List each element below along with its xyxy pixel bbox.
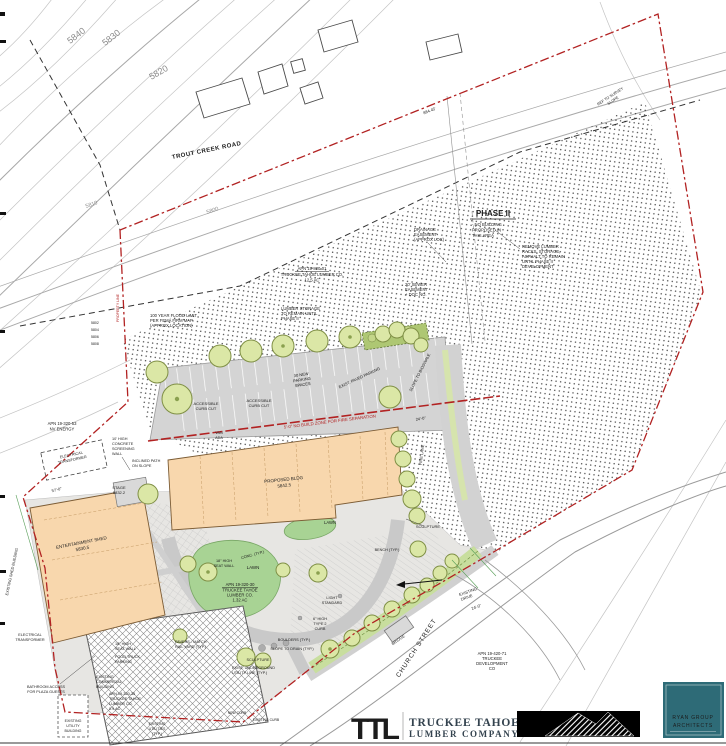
existing-utilities-label: (TYP.) [152,732,162,736]
inclined-path-label: ON SLOPE [132,464,152,468]
phase2-remove-note: DEVELOPMENT [522,264,554,269]
apn-nv-energy: APN 19-320-53 [48,421,78,426]
van-ada-label: VAN [215,431,223,435]
phase2-note: - NO BUILDING [472,222,502,227]
transformer-south-label: ELECTRICAL [18,633,41,637]
existing-utilities-label: UTILITIES [149,727,166,731]
existing-shed-label: EXISTING SHED BUILDING [5,548,19,596]
contour-label: 5806 [91,335,99,339]
screening-wall-label: 10' HIGH [112,437,128,441]
apn-phase2: TRUCKEE TAHOE LUMBER CO. [281,272,343,277]
screening-wall-label: CONCRETE [112,442,134,446]
accessible-curb-cut-label: CURB CUT [196,406,217,411]
utility-line-label: UTILITY LINE (TYP.) [232,671,268,675]
utility-line-label: EXIST. UNDERGROUND [232,666,275,670]
phase2-note: THIS AREA [472,233,494,238]
slope-drain-label: SLOPE TO DRAIN (TYP.) [270,647,314,651]
apn-south: TRUCKEE TAHOE [109,697,141,701]
inclined-path-label: INCLINED PATH [132,459,161,463]
apn-south: LUMBER CO. [109,702,133,706]
food-truck-label: PARKING [115,660,132,664]
contour-label: 5802 [91,321,99,325]
contour-label: 5830 [100,28,122,48]
transformer-south-label: TRANSFORMER [15,638,45,642]
west-dimension: 57'-0" [51,486,63,493]
seat-wall-south-label: 18" HIGH [115,642,131,646]
apn-nv-energy: NV ENERGY [50,427,75,432]
seat-wall-label: SEAT WALL [214,564,235,568]
architect-name: ARCHITECTS [673,723,713,729]
pavers-label: PAVERS - MATCH [175,640,207,644]
architect-name: RYAN GROUP [672,715,713,721]
ttl-logo-icon: TTL [351,713,400,746]
seat-wall-label: 18" HIGH [216,559,232,563]
apn-plaza: APN 19-320-30 [226,582,256,587]
screening-wall-label: SCREENING [112,447,135,451]
utility-building-label: BUILDING [65,729,82,733]
utility-building-label: UTILITY [66,724,80,728]
contour-label: 5804 [91,328,99,332]
seat-wall-south-label: SEAT WALL [115,647,136,651]
company-name: TRUCKEE TAHOE [409,717,520,729]
sculpture-label: SCULPTURE [247,658,270,662]
existing-commercial-label: COMMERCIAL [96,680,122,684]
contour-label: 5808 [91,342,99,346]
lawn-label: LAWN [247,565,260,570]
drainage-easement-note: (APPROX LOC) [414,237,445,242]
apn-phase2: 12.5 AC [305,278,320,283]
apn-south: APN 19-320-35 [109,692,135,696]
accessible-curb-cut-label: CURB CUT [249,403,270,408]
stage-label: 5832.2 [113,490,126,495]
flood-limit-note: (APPROX LOCATION) [150,323,193,328]
bench-label: BENCH (TYP.) [375,548,401,552]
pavers-label: RAIL YARD (TYP.) [175,645,207,649]
property-line-label: PROPERTY LINE [116,293,120,322]
lawn-label: LAWN [324,520,336,525]
apn-development: CO [489,666,496,671]
light-standard-label: STANDARD [322,601,343,605]
site-plan-sheet: 5840 5830 5820 5810 5800 5802 5804 5806 … [0,0,726,746]
curb-type2-label: TYPE 2 [313,622,326,626]
new-curb-label: NEW CURB [228,711,247,715]
phase2-note: PROPOSED IN [472,228,501,233]
contour-label: 5800 [206,206,220,215]
site-plan-drawing: 5840 5830 5820 5810 5800 5802 5804 5806 … [0,0,726,746]
contour-label: 5820 [147,63,169,82]
existing-curb-label: EXISTING CURB [253,718,280,722]
boulders-label: BOULDERS (TYP.) [278,638,311,642]
bathroom-access-label: BATHROOM ACCESS [27,685,66,689]
contour-label: 5810 [85,200,99,209]
food-truck-label: FOOD TRUCK [115,655,140,659]
storage-note: PHASE II [281,316,299,321]
sculpture-label: SCULPTURE [416,524,441,529]
architect-logo: RYAN GROUP ARCHITECTS [663,682,724,738]
apn-phase2: APN 19-820-01 [298,266,328,271]
utility-building-label: EXISTING [65,719,82,723]
boundary-dimension: 884.45' [422,106,436,115]
company-name: LUMBER COMPANY [409,729,519,739]
van-ada-label: ADA [215,436,223,440]
bathroom-access-label: FOR PLAZA GUESTS [27,690,65,694]
apn-plaza: 1.32 AC [233,598,248,603]
curb-type2-label: CURB [315,627,326,631]
curb-type2-label: 6" HIGH [313,617,327,621]
existing-commercial-label: EXISTING [96,675,114,679]
phase2-title: PHASE II [476,209,510,218]
mountain-logo-icon [517,711,640,737]
sewer-easement-note: + DOC NO. [405,292,427,297]
drive-dimension: 24'-0" [471,603,483,611]
existing-commercial-label: BUILDING [96,685,114,689]
edge-marks [0,12,6,625]
existing-utilities-label: EXISTING [149,722,166,726]
light-standard-label: LIGHT [326,596,338,600]
apn-south: 0.9 AC [109,707,121,711]
screening-wall-label: WALL [112,452,122,456]
